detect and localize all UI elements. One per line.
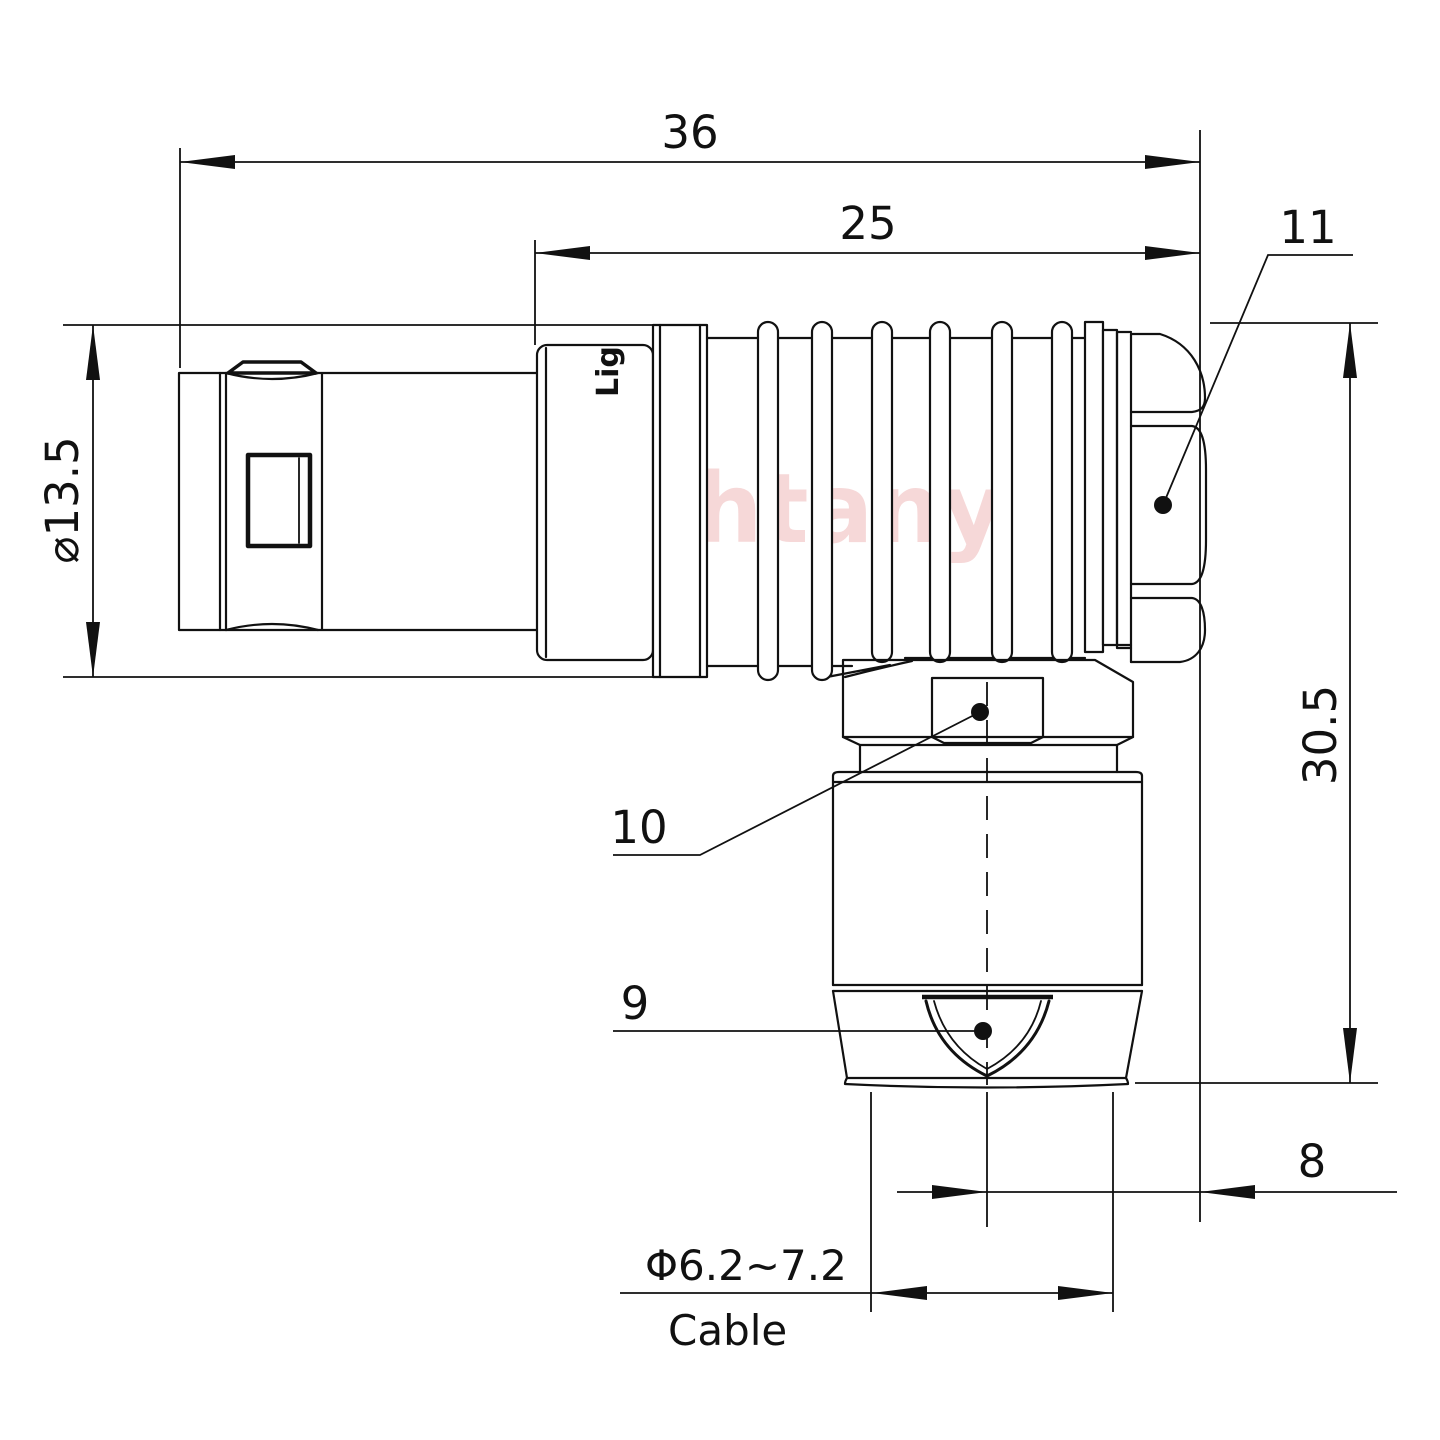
cable-label: Cable xyxy=(668,1306,787,1355)
dim-25-label: 25 xyxy=(839,197,896,250)
front-barrel xyxy=(179,362,537,630)
leader-backnut: 11 xyxy=(1154,201,1353,514)
leader-dot-10 xyxy=(971,703,989,721)
sleeve-logo-print: Lig xyxy=(591,346,626,397)
elbow-shoulder-curve xyxy=(827,661,912,677)
release-sleeve: Lig xyxy=(537,345,653,660)
leader-bushing: 9 xyxy=(613,977,992,1040)
ref-10-label: 10 xyxy=(610,801,667,854)
connector-body: Lig xyxy=(179,322,1206,1227)
ref-9-label: 9 xyxy=(621,977,650,1030)
latch-bump xyxy=(228,362,316,373)
dim-36-label: 36 xyxy=(661,106,718,159)
dimension-offset: 8 xyxy=(897,1135,1397,1199)
housing-band xyxy=(653,325,707,677)
dim-8-label: 8 xyxy=(1298,1135,1327,1188)
dim-13_5-label: ⌀13.5 xyxy=(36,436,89,563)
latch-window xyxy=(248,455,310,546)
leader-dot-9 xyxy=(974,1022,992,1040)
cable-range-label: Φ6.2~7.2 xyxy=(645,1241,847,1290)
connector-dimension-drawing: Lightany Lig xyxy=(0,0,1440,1440)
technical-drawing-page: Lightany Lig xyxy=(0,0,1440,1440)
ref-11-label: 11 xyxy=(1279,201,1336,254)
dim-30_5-label: 30.5 xyxy=(1294,685,1347,785)
dimension-height: 30.5 xyxy=(1135,323,1378,1083)
leader-dot-11 xyxy=(1154,496,1172,514)
dimension-cable-range: Φ6.2~7.2 Cable xyxy=(620,1092,1113,1355)
